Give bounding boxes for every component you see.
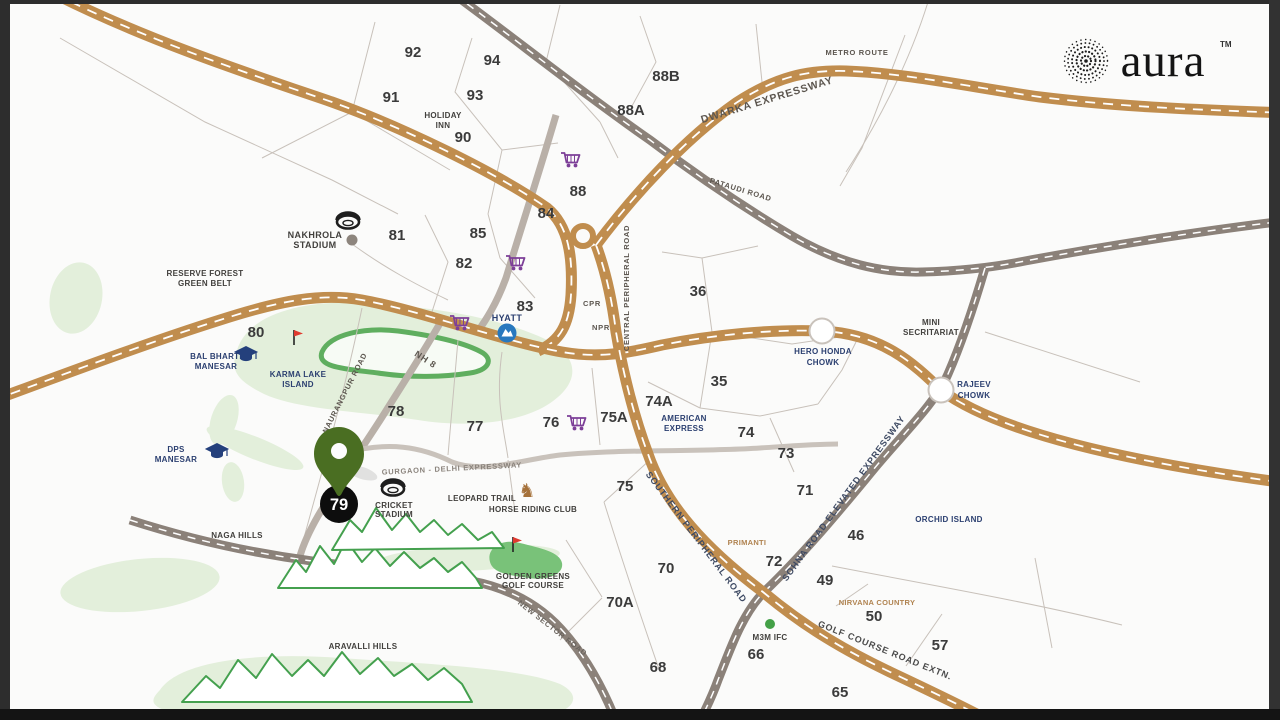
- reserve-forest-label-1: RESERVE FOREST: [167, 269, 244, 278]
- horse-rider-icon: ♞: [518, 481, 535, 502]
- sector-label-85: 85: [470, 225, 487, 242]
- hyatt-icon: [498, 324, 517, 343]
- metro-station-dot: [347, 235, 358, 246]
- holiday-inn-label-2: INN: [436, 121, 451, 130]
- sector-label-78: 78: [388, 403, 405, 420]
- aravalli-hills-label: ARAVALLI HILLS: [329, 642, 398, 651]
- sector-label-88a: 88A: [617, 102, 645, 119]
- leopard-trail-label: LEOPARD TRAIL: [448, 494, 516, 503]
- sector-label-90: 90: [455, 129, 472, 146]
- sector-label-76: 76: [543, 414, 560, 431]
- sector-label-49: 49: [817, 572, 834, 589]
- bottom-bar: [0, 709, 1280, 720]
- sector-label-91: 91: [383, 89, 400, 106]
- sector-label-73: 73: [778, 445, 795, 462]
- dps-manesar-label-2: MANESAR: [155, 455, 198, 464]
- sector-label-71: 71: [797, 482, 814, 499]
- bal-bharti-label-1: BAL BHARTI: [190, 352, 242, 361]
- central-peripheral-road-label: CENTRAL PERIPHERAL ROAD: [622, 225, 631, 351]
- orchid-island-label: ORCHID ISLAND: [915, 515, 982, 524]
- sector-label-68: 68: [650, 659, 667, 676]
- sector-label-80: 80: [248, 324, 265, 341]
- sector-label-92: 92: [405, 44, 422, 61]
- sector-label-57: 57: [932, 637, 949, 654]
- bal-bharti-label-2: MANESAR: [195, 362, 238, 371]
- nakhrola-stadium-label-2: STADIUM: [293, 240, 336, 250]
- sector-label-82: 82: [456, 255, 473, 272]
- sector-label-66: 66: [748, 646, 765, 663]
- sector-label-94: 94: [484, 52, 501, 69]
- american-express-label-1: AMERICAN: [661, 414, 707, 423]
- hero-honda-chowk-label-2: CHOWK: [807, 358, 840, 367]
- location-map: 92 94 91 93 90 88B 88A 88 84 81 85 82 83…: [0, 0, 1280, 720]
- naga-hills-label: NAGA HILLS: [211, 531, 263, 540]
- sector-label-36: 36: [690, 283, 707, 300]
- sector-label-93: 93: [467, 87, 484, 104]
- reserve-forest-label-2: GREEN BELT: [178, 279, 232, 288]
- sector-label-72: 72: [766, 553, 783, 570]
- sector-label-74a: 74A: [645, 393, 673, 410]
- sector-label-35: 35: [711, 373, 728, 390]
- pin-sector-number: 79: [330, 496, 348, 514]
- map-slide: 92 94 91 93 90 88B 88A 88 84 81 85 82 83…: [0, 0, 1280, 720]
- karma-lake-label-1: KARMA LAKE: [270, 370, 327, 379]
- sector-label-75: 75: [617, 478, 634, 495]
- brand-name: aura: [1121, 35, 1206, 87]
- sector-label-81: 81: [389, 227, 406, 244]
- holiday-inn-label-1: HOLIDAY: [424, 111, 462, 120]
- sector-label-75a: 75A: [600, 409, 628, 426]
- sector-label-50: 50: [866, 608, 883, 625]
- m3m-ifc-label: M3M IFC: [753, 633, 788, 642]
- dps-manesar-label-1: DPS: [167, 445, 185, 454]
- horse-riding-club-label: HORSE RIDING CLUB: [489, 505, 577, 514]
- karma-lake-label-2: ISLAND: [282, 380, 314, 389]
- pin-marker-hole: [331, 443, 347, 459]
- rajeev-chowk-circle: [929, 378, 954, 403]
- hero-honda-chowk-label-1: HERO HONDA: [794, 347, 852, 356]
- cricket-stadium-label-2: STADIUM: [375, 510, 413, 519]
- nakhrola-stadium-label-1: NAKHROLA: [288, 230, 343, 240]
- sector-label-70: 70: [658, 560, 675, 577]
- sector-label-88: 88: [570, 183, 587, 200]
- sector-label-70a: 70A: [606, 594, 634, 611]
- mini-secretariat-label-2: SECRITARIAT: [903, 328, 959, 337]
- npr-label: NPR: [592, 323, 610, 332]
- rajeev-chowk-label-1: RAJEEV: [957, 380, 991, 389]
- sector-label-88b: 88B: [652, 68, 680, 85]
- sector-label-84: 84: [538, 205, 555, 222]
- sector-label-65: 65: [832, 684, 849, 701]
- nirvana-country-label: NIRVANA COUNTRY: [839, 598, 916, 607]
- golden-greens-label-2: GOLF COURSE: [502, 581, 564, 590]
- m3m-ifc-dot: [765, 619, 775, 629]
- american-express-label-2: EXPRESS: [664, 424, 704, 433]
- cricket-stadium-label-1: CRICKET: [375, 501, 413, 510]
- golden-greens-label-1: GOLDEN GREENS: [496, 572, 570, 581]
- hyatt-label: HYATT: [492, 313, 523, 323]
- sector-label-46: 46: [848, 527, 865, 544]
- sector-label-74: 74: [738, 424, 755, 441]
- hero-honda-chowk-circle: [810, 319, 835, 344]
- rajeev-chowk-label-2: CHOWK: [958, 391, 991, 400]
- cpr-label: CPR: [583, 299, 601, 308]
- mini-secretariat-label-1: MINI: [922, 318, 940, 327]
- metro-route-label: METRO ROUTE: [825, 48, 888, 57]
- brand-tm: TM: [1220, 40, 1232, 49]
- primanti-label: PRIMANTI: [728, 538, 767, 547]
- sector-label-77: 77: [467, 418, 484, 435]
